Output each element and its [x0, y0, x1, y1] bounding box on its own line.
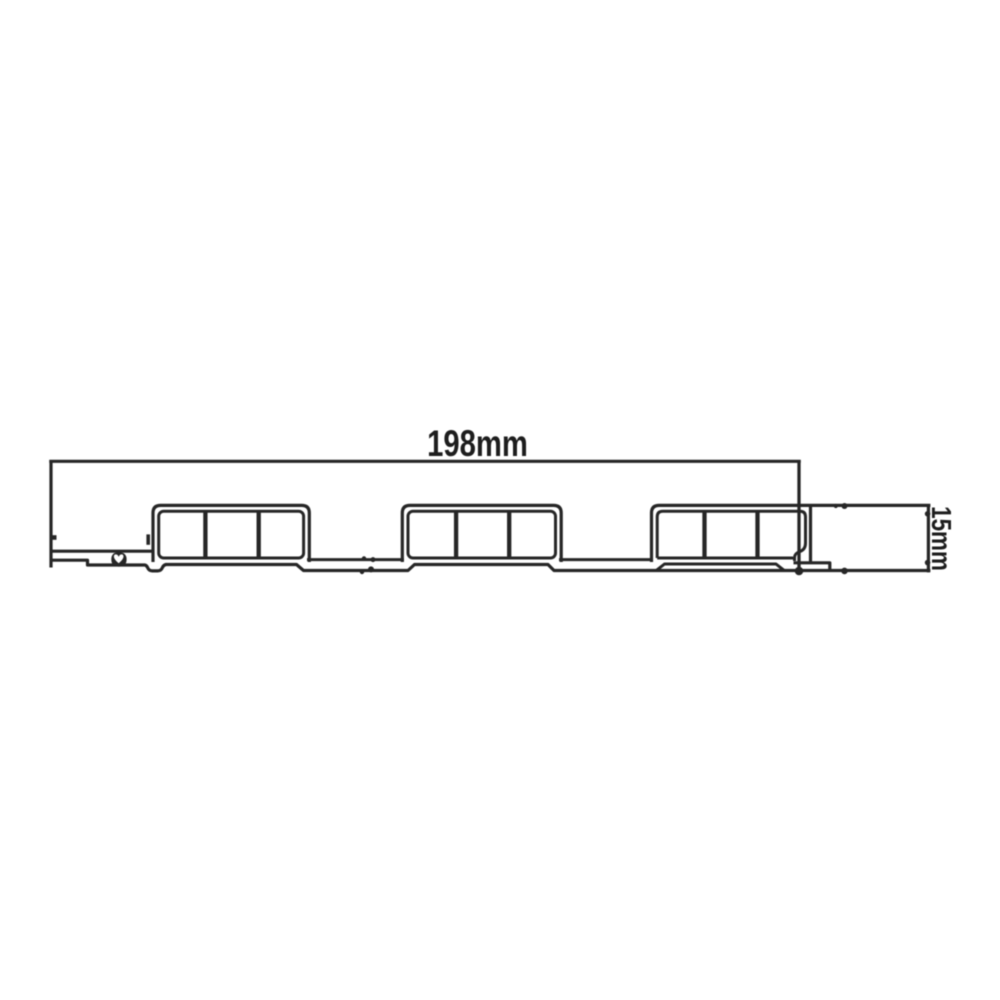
svg-text:198mm: 198mm — [427, 424, 528, 465]
svg-text:15mm: 15mm — [925, 506, 956, 571]
